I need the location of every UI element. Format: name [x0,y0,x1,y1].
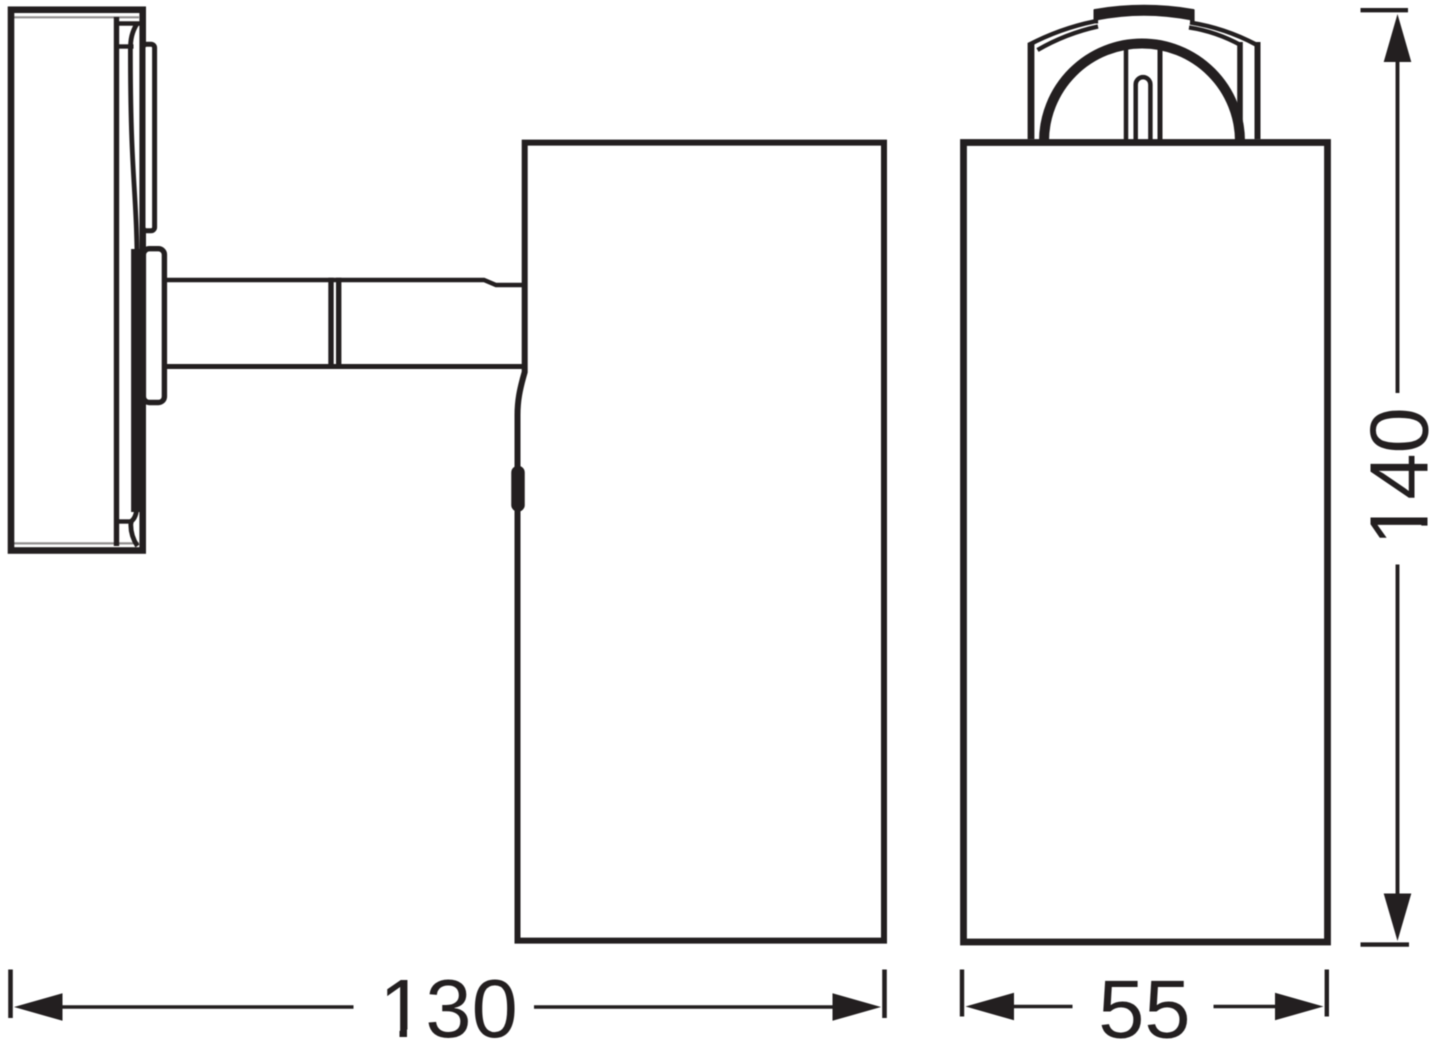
svg-text:140: 140 [1353,407,1440,545]
svg-text:55: 55 [1098,962,1190,1049]
svg-text:130: 130 [379,962,517,1049]
